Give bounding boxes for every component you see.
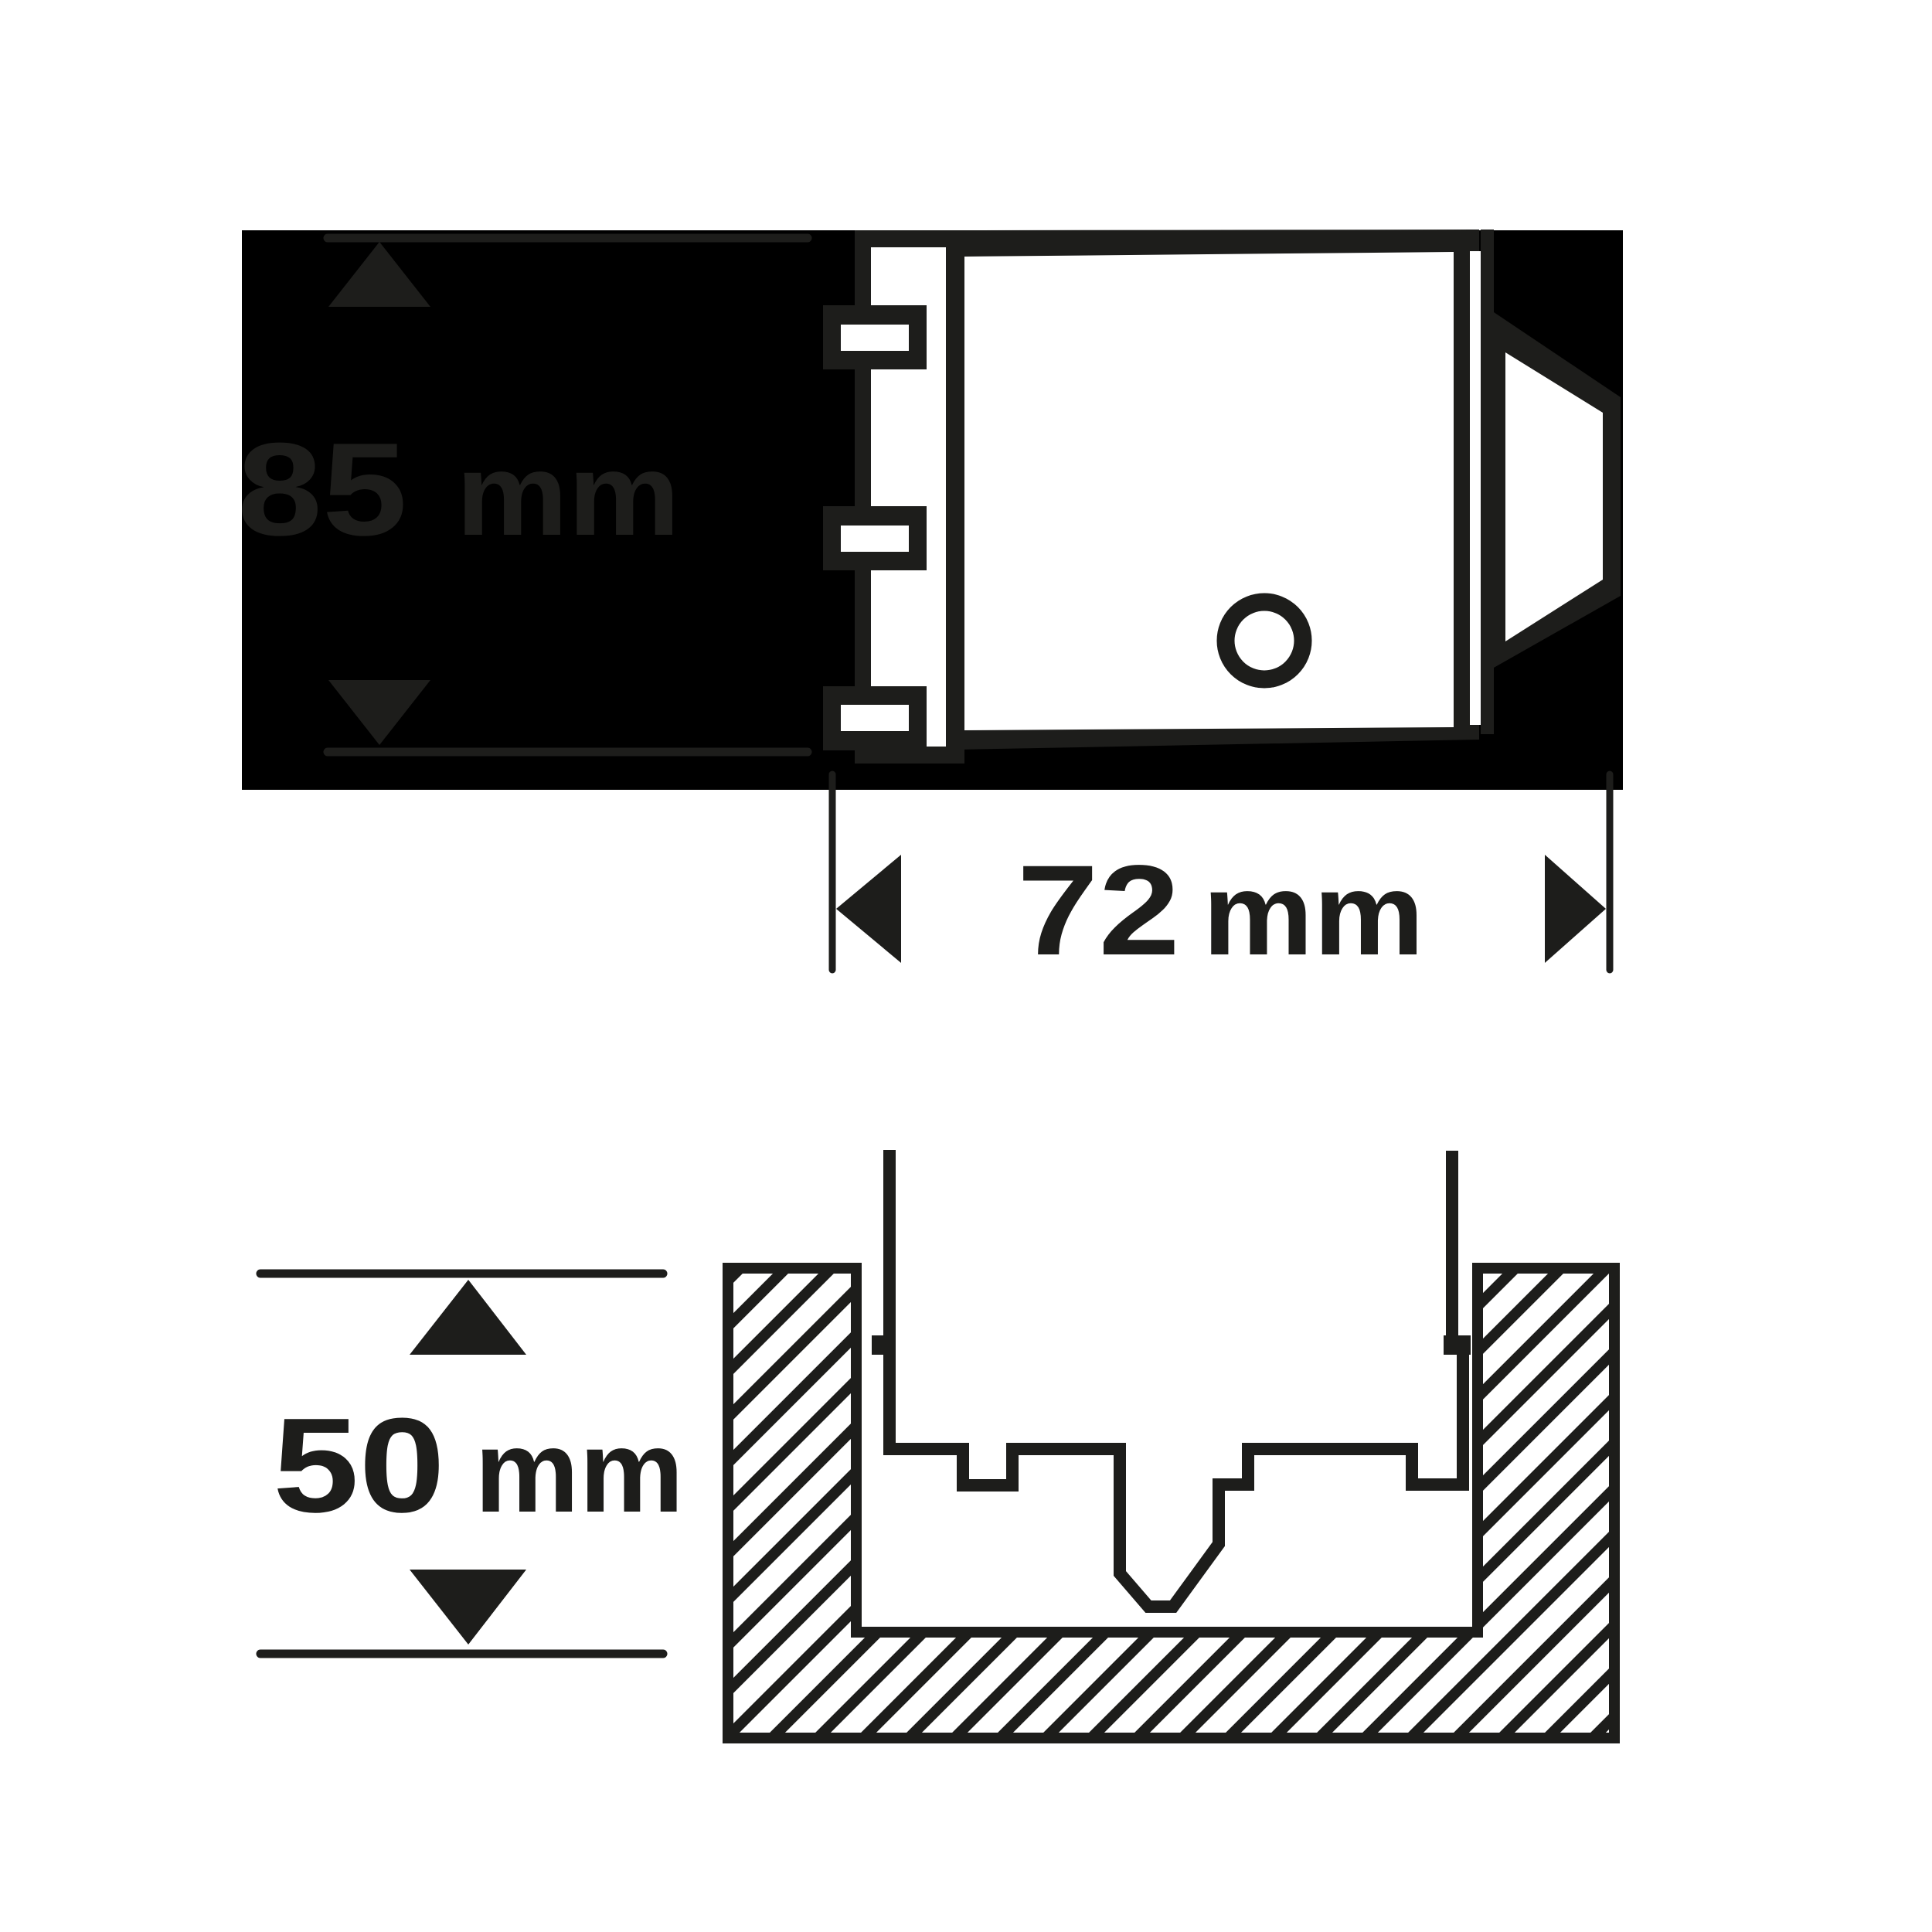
svg-text:mm: mm: [456, 429, 680, 560]
svg-text:85: 85: [237, 416, 407, 563]
svg-text:50: 50: [273, 1389, 445, 1540]
svg-text:mm: mm: [1202, 849, 1424, 980]
svg-text:72: 72: [1017, 839, 1180, 982]
svg-text:mm: mm: [474, 1406, 684, 1537]
